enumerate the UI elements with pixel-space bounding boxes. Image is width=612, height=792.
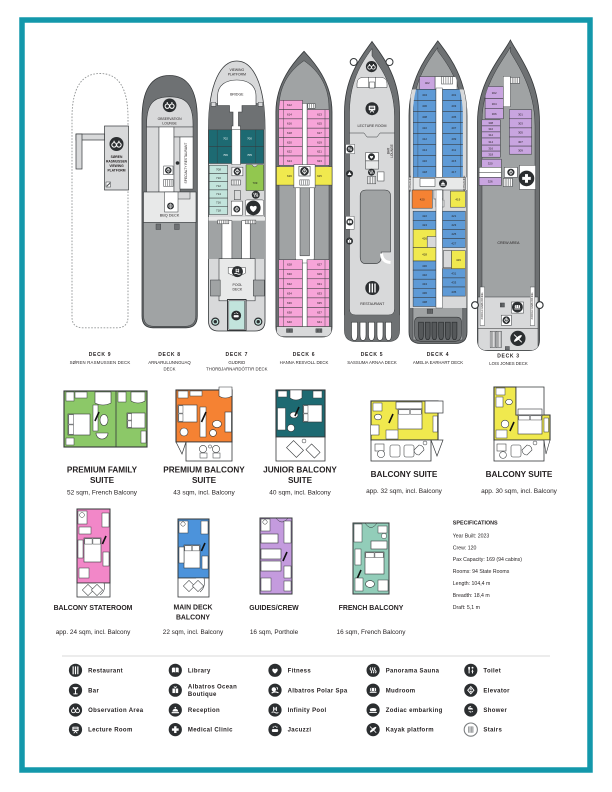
svg-text:618: 618 [287, 131, 292, 135]
svg-text:Observation Area: Observation Area [88, 708, 144, 714]
svg-text:Infinity Pool: Infinity Pool [288, 708, 327, 714]
svg-text:AMELIA EARHART DECK: AMELIA EARHART DECK [413, 360, 463, 365]
svg-text:SØREN RASMUSSEN DECK: SØREN RASMUSSEN DECK [70, 360, 131, 365]
svg-text:430: 430 [422, 264, 427, 268]
svg-text:ARNARULUNNGUAQ: ARNARULUNNGUAQ [148, 360, 191, 365]
svg-text:Rooms: 94 State Rooms: Rooms: 94 State Rooms [453, 569, 510, 575]
svg-text:614: 614 [287, 112, 292, 116]
svg-text:BALCONY SUITE: BALCONY SUITE [486, 470, 553, 479]
svg-text:631: 631 [317, 282, 322, 286]
svg-text:PLATFORM: PLATFORM [107, 169, 125, 173]
svg-text:Panorama Sauna: Panorama Sauna [386, 668, 440, 674]
svg-text:408: 408 [422, 115, 427, 119]
svg-text:SPECIFICATIONS: SPECIFICATIONS [453, 520, 498, 526]
svg-text:app. 24 sqm, incl. Balcony: app. 24 sqm, incl. Balcony [56, 629, 131, 636]
svg-text:426: 426 [422, 237, 427, 241]
svg-text:HANNA RESVOLL DECK: HANNA RESVOLL DECK [280, 360, 329, 365]
svg-text:423: 423 [451, 223, 456, 227]
svg-text:613: 613 [317, 112, 322, 116]
svg-text:DECK 9: DECK 9 [89, 352, 112, 358]
svg-text:621: 621 [317, 150, 322, 154]
svg-text:ENTRANCE: ENTRANCE [462, 175, 466, 191]
svg-text:419: 419 [455, 197, 460, 201]
svg-text:SØREN: SØREN [111, 155, 123, 159]
svg-text:637: 637 [317, 310, 322, 314]
svg-text:714: 714 [216, 192, 221, 196]
svg-text:OBSERVATION: OBSERVATION [158, 117, 182, 121]
svg-text:628: 628 [287, 263, 292, 267]
svg-text:307: 307 [518, 140, 523, 144]
svg-text:BALCONY SUITE: BALCONY SUITE [371, 470, 438, 479]
svg-text:436: 436 [422, 291, 427, 295]
svg-text:app. 32 sqm, incl. Balcony: app. 32 sqm, incl. Balcony [366, 488, 443, 495]
svg-text:612: 612 [287, 103, 292, 107]
svg-text:635: 635 [317, 301, 322, 305]
svg-text:709: 709 [252, 181, 257, 185]
svg-text:Breadth: 18,4 m: Breadth: 18,4 m [453, 593, 490, 599]
svg-text:Elevator: Elevator [483, 688, 510, 694]
svg-text:Library: Library [188, 668, 211, 674]
svg-text:16 sqm, French Balcony: 16 sqm, French Balcony [337, 629, 407, 636]
svg-text:627: 627 [317, 263, 322, 267]
svg-text:PREMIUM BALCONY: PREMIUM BALCONY [163, 466, 245, 475]
svg-text:630: 630 [287, 272, 292, 276]
svg-text:Draft: 5,1 m: Draft: 5,1 m [453, 605, 480, 611]
svg-text:Stairs: Stairs [483, 728, 502, 734]
svg-text:434: 434 [422, 282, 427, 286]
svg-text:DECK 4: DECK 4 [427, 352, 450, 358]
svg-text:428: 428 [422, 252, 427, 256]
svg-text:52 sqm, French Balcony: 52 sqm, French Balcony [67, 490, 138, 497]
svg-text:SPECIALTY RESTAURANT: SPECIALTY RESTAURANT [184, 143, 188, 184]
svg-text:16 sqm, Porthole: 16 sqm, Porthole [250, 629, 299, 636]
svg-text:DECK: DECK [233, 287, 243, 291]
svg-text:309: 309 [518, 148, 523, 152]
svg-text:416: 416 [422, 159, 427, 163]
svg-text:40 sqm, incl. Balcony: 40 sqm, incl. Balcony [269, 490, 331, 497]
svg-text:633: 633 [317, 291, 322, 295]
svg-text:712: 712 [216, 184, 221, 188]
svg-text:433: 433 [451, 281, 456, 285]
svg-text:406: 406 [422, 104, 427, 108]
svg-text:Length: 104,4 m: Length: 104,4 m [453, 581, 491, 587]
svg-text:615: 615 [317, 122, 322, 126]
svg-text:410: 410 [422, 126, 427, 130]
svg-text:FRENCH BALCONY: FRENCH BALCONY [339, 605, 404, 612]
svg-text:312: 312 [488, 133, 493, 137]
svg-text:Jacuzzi: Jacuzzi [288, 728, 312, 734]
svg-text:Mudroom: Mudroom [386, 688, 416, 694]
svg-text:415: 415 [451, 159, 456, 163]
svg-text:JUNIOR BALCONY: JUNIOR BALCONY [263, 466, 337, 475]
svg-text:404: 404 [422, 93, 427, 97]
svg-text:Kayak platform: Kayak platform [386, 728, 434, 734]
svg-text:636: 636 [287, 301, 292, 305]
svg-text:308: 308 [488, 121, 493, 125]
svg-text:DECK 8: DECK 8 [158, 352, 181, 358]
svg-text:Crew: 120: Crew: 120 [453, 545, 477, 551]
svg-text:305: 305 [518, 131, 523, 135]
svg-text:708: 708 [216, 168, 221, 172]
svg-text:Pax Capacity: 169 (94 cabins): Pax Capacity: 169 (94 cabins) [453, 557, 522, 563]
svg-text:app. 30 sqm, incl. Balcony: app. 30 sqm, incl. Balcony [481, 488, 558, 495]
svg-text:Toilet: Toilet [483, 668, 501, 674]
svg-text:ENTRANCE: ENTRANCE [408, 175, 412, 191]
svg-text:316: 316 [488, 146, 493, 150]
svg-text:622: 622 [287, 150, 292, 154]
svg-text:Zodiac embarking: Zodiac embarking [386, 708, 443, 714]
svg-text:DECK: DECK [164, 367, 176, 372]
svg-text:SUITE: SUITE [90, 476, 115, 485]
svg-text:POOL: POOL [233, 283, 243, 287]
svg-text:318: 318 [488, 152, 493, 156]
svg-text:GUDRID: GUDRID [228, 360, 245, 365]
svg-text:626: 626 [287, 174, 292, 178]
svg-text:700: 700 [247, 136, 252, 140]
svg-text:407: 407 [451, 126, 456, 130]
svg-text:716: 716 [216, 200, 221, 204]
svg-text:ZODIAC EMBARKING: ZODIAC EMBARKING [480, 292, 484, 319]
svg-text:Medical Clinic: Medical Clinic [188, 728, 233, 734]
svg-text:Restaurant: Restaurant [88, 668, 123, 674]
svg-text:GUIDES/CREW: GUIDES/CREW [249, 605, 299, 612]
svg-text:LOIS JONES DECK: LOIS JONES DECK [489, 361, 528, 366]
svg-text:424: 424 [422, 223, 427, 227]
svg-text:THORBJARNARDÓTTIR DECK: THORBJARNARDÓTTIR DECK [206, 367, 267, 372]
svg-text:BRIDGE: BRIDGE [230, 93, 244, 97]
svg-text:623: 623 [317, 159, 322, 163]
svg-text:429: 429 [456, 258, 461, 262]
svg-text:629: 629 [317, 272, 322, 276]
svg-text:617: 617 [317, 131, 322, 135]
svg-text:412: 412 [422, 137, 427, 141]
svg-text:BALCONY STATEROOM: BALCONY STATEROOM [54, 605, 133, 612]
svg-text:Bar: Bar [88, 688, 99, 694]
svg-text:425: 425 [451, 232, 456, 236]
svg-text:706: 706 [223, 153, 228, 157]
svg-text:LOUNGE: LOUNGE [390, 144, 394, 157]
svg-text:DECK 6: DECK 6 [293, 352, 316, 358]
svg-text:702: 702 [223, 136, 228, 140]
svg-text:DECK 3: DECK 3 [497, 354, 520, 360]
svg-text:427: 427 [451, 241, 456, 245]
svg-text:411: 411 [452, 148, 457, 152]
svg-text:718: 718 [216, 209, 221, 213]
svg-text:616: 616 [287, 122, 292, 126]
svg-text:414: 414 [422, 148, 427, 152]
svg-text:432: 432 [422, 273, 427, 277]
svg-text:LOUNGE: LOUNGE [162, 121, 177, 125]
svg-text:VIEWING: VIEWING [109, 164, 124, 168]
svg-text:310: 310 [488, 127, 493, 131]
svg-text:Year Built: 2023: Year Built: 2023 [453, 533, 490, 539]
svg-text:DECK 5: DECK 5 [361, 352, 384, 358]
svg-text:624: 624 [287, 159, 292, 163]
svg-text:Albatros Ocean: Albatros Ocean [188, 685, 237, 691]
svg-text:PREMIUM FAMILY: PREMIUM FAMILY [67, 466, 138, 475]
svg-text:301: 301 [518, 112, 523, 116]
svg-text:409: 409 [451, 137, 456, 141]
svg-text:420: 420 [420, 197, 425, 201]
svg-text:Fitness: Fitness [288, 668, 312, 674]
svg-text:Shower: Shower [483, 708, 507, 714]
svg-text:Lecture Room: Lecture Room [88, 728, 133, 734]
svg-text:Reception: Reception [188, 708, 220, 714]
svg-text:641: 641 [317, 320, 322, 324]
svg-text:401: 401 [451, 93, 456, 97]
svg-text:640: 640 [287, 320, 292, 324]
svg-text:710: 710 [216, 176, 221, 180]
svg-text:402: 402 [425, 81, 430, 85]
svg-text:SUITE: SUITE [288, 476, 313, 485]
svg-text:PLATFORM: PLATFORM [228, 73, 246, 77]
svg-text:SASSUMA ARNAA DECK: SASSUMA ARNAA DECK [347, 360, 397, 365]
svg-text:302: 302 [492, 91, 497, 95]
svg-text:RESTAURANT: RESTAURANT [360, 302, 385, 306]
svg-text:LECTURE ROOM: LECTURE ROOM [358, 124, 387, 128]
svg-text:417: 417 [451, 170, 456, 174]
svg-text:634: 634 [287, 291, 292, 295]
svg-text:320: 320 [488, 161, 493, 165]
svg-text:405: 405 [451, 115, 456, 119]
svg-text:403: 403 [451, 104, 456, 108]
svg-text:Albatros Polar Spa: Albatros Polar Spa [288, 688, 348, 694]
svg-text:620: 620 [287, 140, 292, 144]
svg-text:MAIN DECK: MAIN DECK [173, 604, 212, 611]
svg-text:438: 438 [422, 300, 427, 304]
svg-text:326: 326 [488, 180, 493, 184]
svg-text:619: 619 [317, 140, 322, 144]
svg-text:DECK 7: DECK 7 [226, 352, 249, 358]
svg-text:SUITE: SUITE [192, 476, 217, 485]
svg-text:625: 625 [317, 174, 322, 178]
svg-text:22 sqm, incl. Balcony: 22 sqm, incl. Balcony [163, 629, 224, 636]
svg-text:BALCONY: BALCONY [176, 615, 210, 622]
svg-text:435: 435 [451, 290, 456, 294]
svg-text:BBQ DECK: BBQ DECK [160, 214, 180, 218]
svg-text:Boutique: Boutique [188, 692, 217, 698]
svg-text:638: 638 [287, 310, 292, 314]
svg-text:43 sqm, incl. Balcony: 43 sqm, incl. Balcony [173, 490, 235, 497]
svg-text:431: 431 [451, 272, 456, 276]
svg-text:304: 304 [492, 102, 497, 106]
svg-text:422: 422 [422, 214, 427, 218]
svg-text:632: 632 [287, 282, 292, 286]
svg-text:421: 421 [451, 214, 456, 218]
svg-text:VIEWING: VIEWING [229, 68, 244, 72]
svg-text:705: 705 [247, 153, 252, 157]
svg-text:RASMUSSEN: RASMUSSEN [106, 160, 128, 164]
svg-text:314: 314 [488, 140, 493, 144]
svg-text:ZODIAC EMBARKING: ZODIAC EMBARKING [530, 292, 534, 319]
svg-text:CREW AREA: CREW AREA [497, 241, 520, 245]
svg-text:303: 303 [518, 122, 523, 126]
svg-text:306: 306 [492, 112, 497, 116]
svg-text:418: 418 [422, 170, 427, 174]
